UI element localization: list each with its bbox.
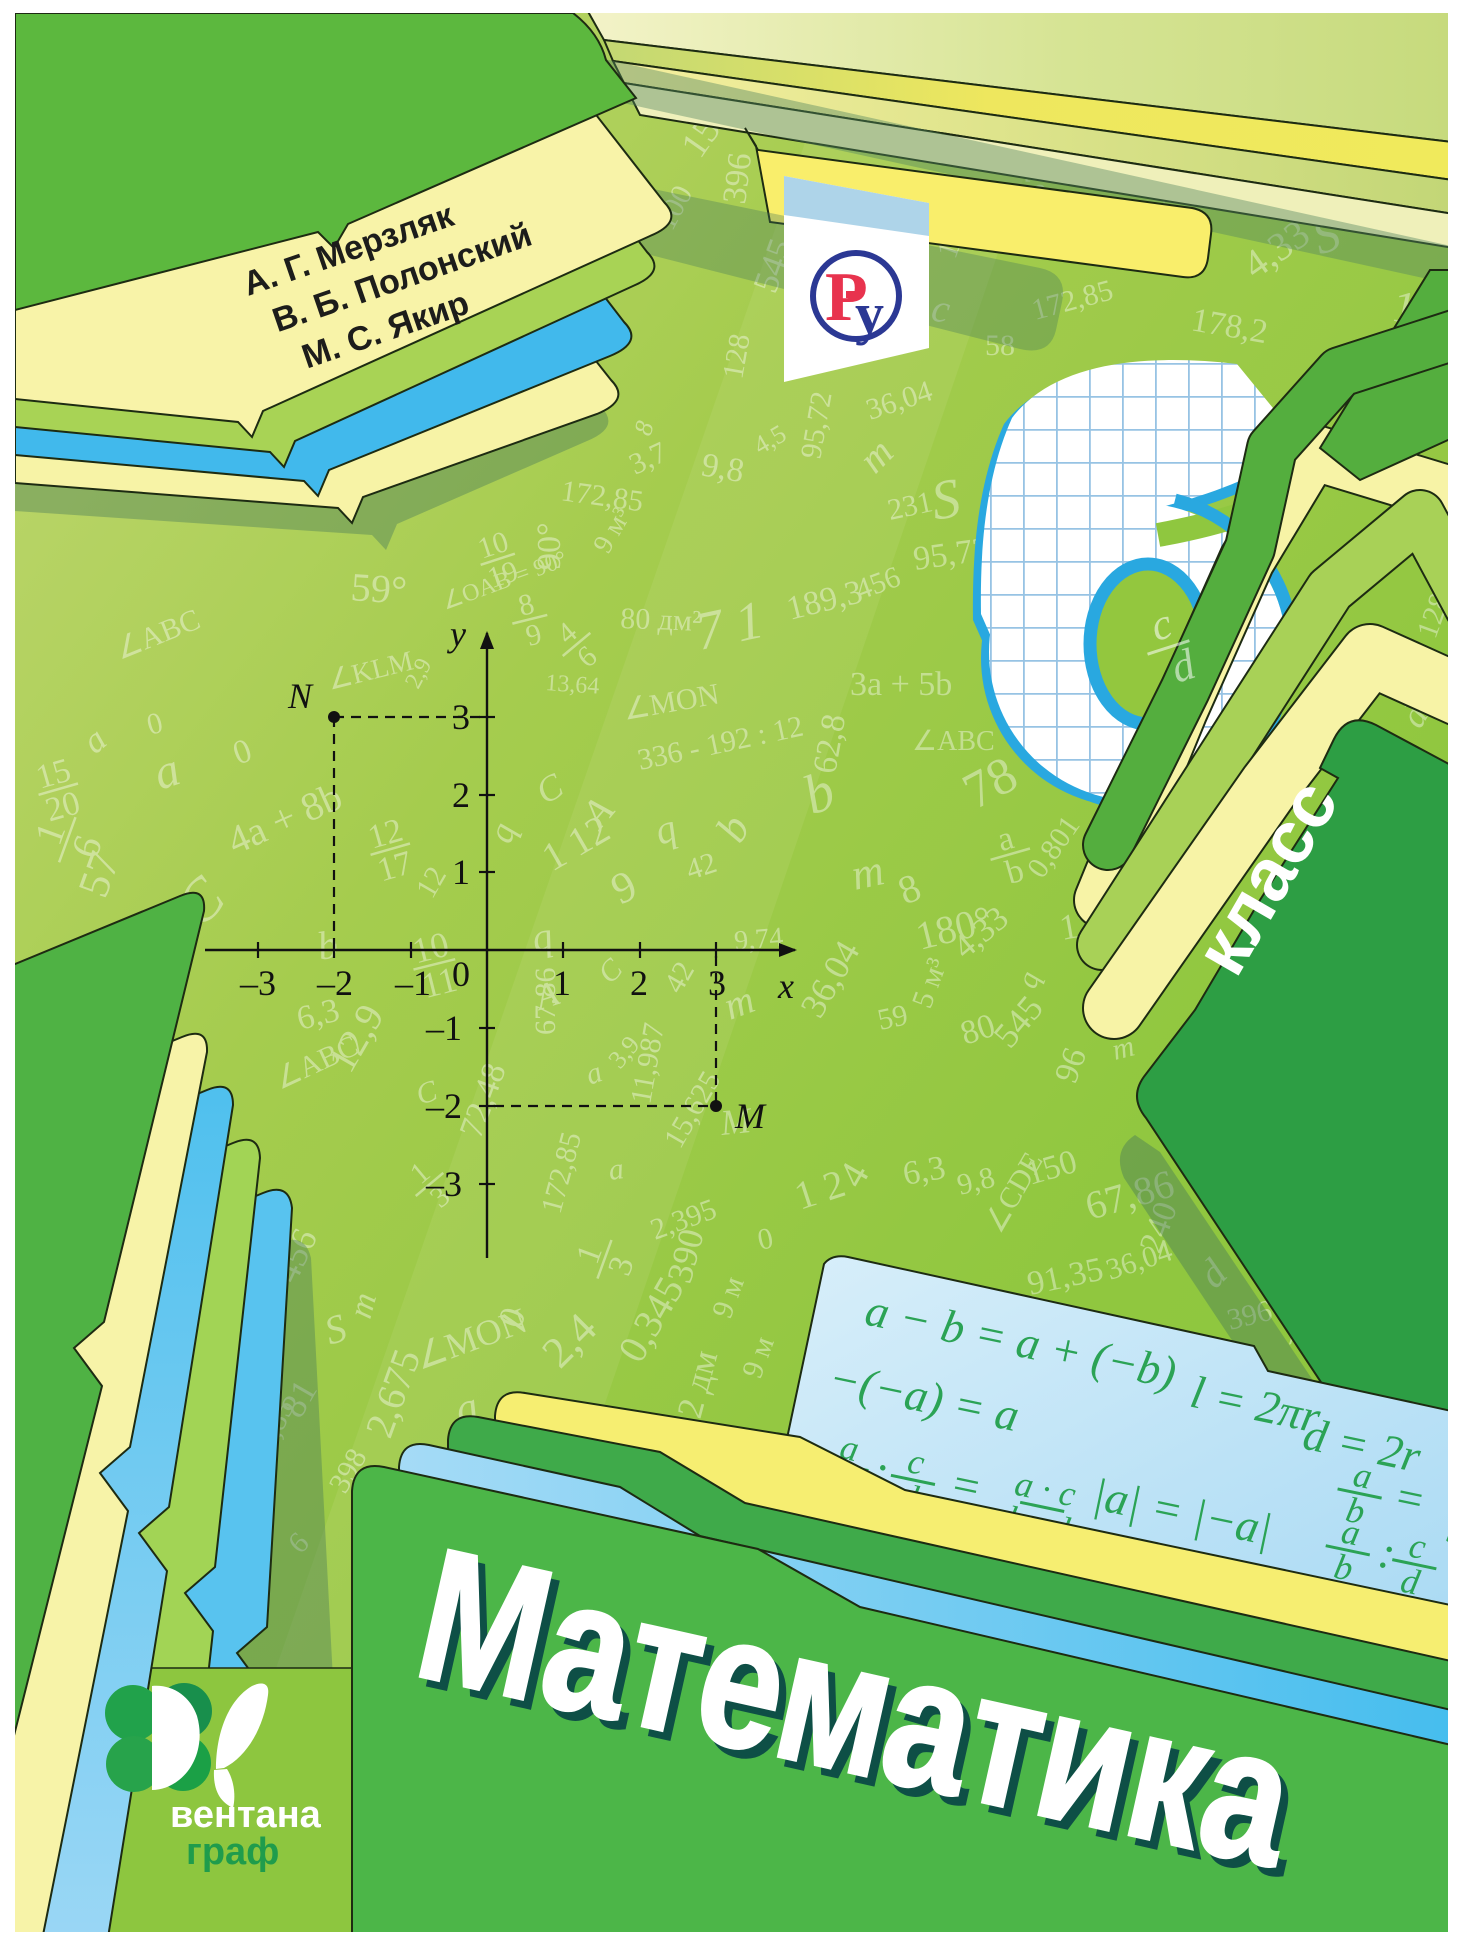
svg-text:3a + 5b: 3a + 5b	[850, 666, 952, 703]
svg-text:–2: –2	[425, 1086, 462, 1126]
svg-text:M: M	[734, 1096, 767, 1136]
svg-text:6,3: 6,3	[900, 1149, 948, 1193]
svg-text:1: 1	[553, 963, 571, 1003]
svg-text:2: 2	[452, 775, 470, 815]
svg-text:396: 396	[716, 151, 759, 206]
svg-text:y: y	[447, 614, 466, 654]
svg-text:1: 1	[452, 852, 470, 892]
svg-text:–1: –1	[425, 1008, 462, 1048]
svg-text:80 дм²: 80 дм²	[620, 602, 702, 638]
svg-text:9,74: 9,74	[733, 922, 785, 957]
svg-text:59°: 59°	[349, 564, 408, 613]
svg-text:3: 3	[708, 963, 726, 1003]
svg-text:граф: граф	[186, 1831, 279, 1873]
svg-text:2: 2	[630, 963, 648, 1003]
svg-text:у: у	[855, 281, 884, 346]
svg-text:0: 0	[452, 954, 470, 994]
svg-text:∠ABC: ∠ABC	[912, 726, 995, 757]
svg-text:–3: –3	[425, 1164, 462, 1204]
svg-text:13,64: 13,64	[545, 670, 601, 700]
svg-text:3: 3	[452, 697, 470, 737]
svg-text:–2: –2	[316, 963, 353, 1003]
svg-text:9,8: 9,8	[699, 446, 747, 490]
svg-text:–1: –1	[394, 963, 431, 1003]
svg-text:–3: –3	[239, 963, 276, 1003]
svg-text:вентана: вентана	[170, 1794, 322, 1836]
svg-text:x: x	[777, 966, 794, 1006]
svg-text:N: N	[287, 676, 314, 716]
